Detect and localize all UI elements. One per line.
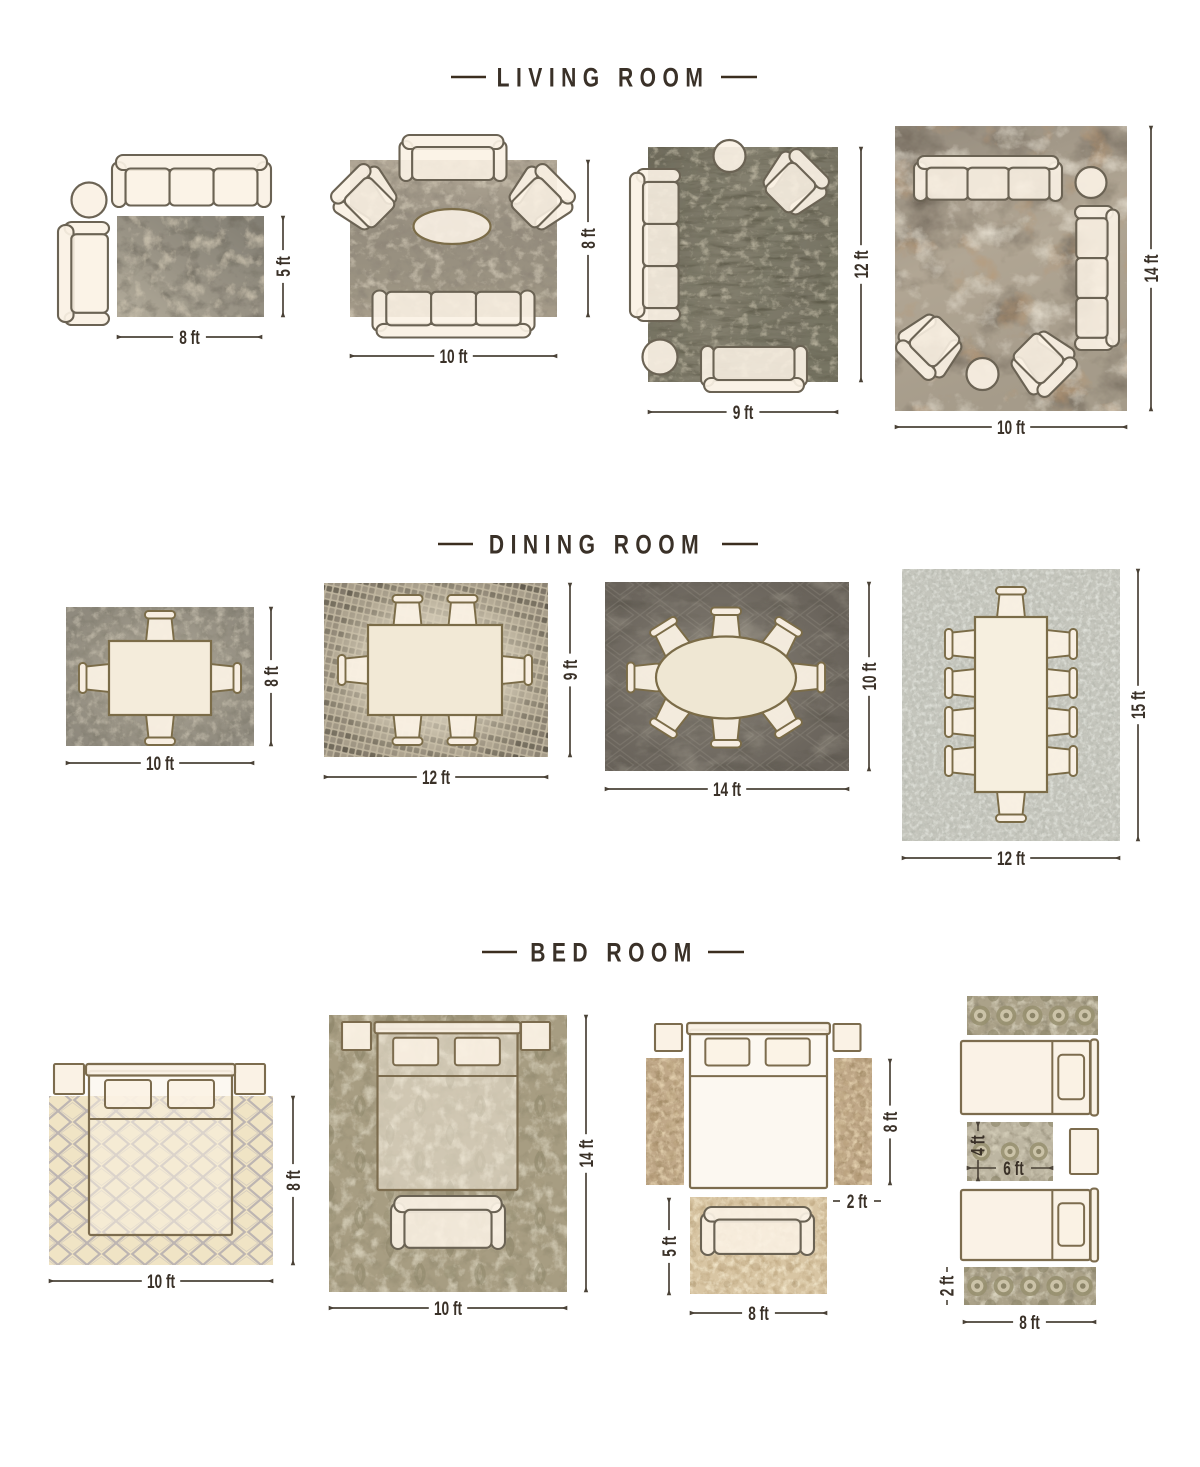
- svg-text:5 ft: 5 ft: [273, 256, 295, 277]
- svg-text:4 ft: 4 ft: [967, 1135, 989, 1156]
- svg-text:10 ft: 10 ft: [439, 346, 468, 368]
- svg-text:12 ft: 12 ft: [851, 250, 873, 279]
- svg-text:10 ft: 10 ft: [997, 417, 1026, 439]
- svg-text:8 ft: 8 ft: [748, 1303, 769, 1325]
- svg-text:8 ft: 8 ft: [578, 228, 600, 249]
- svg-text:LIVING ROOM: LIVING ROOM: [497, 63, 710, 93]
- svg-text:14 ft: 14 ft: [713, 779, 742, 801]
- svg-text:12 ft: 12 ft: [422, 767, 451, 789]
- svg-text:10 ft: 10 ft: [859, 662, 881, 691]
- svg-text:14 ft: 14 ft: [576, 1139, 598, 1168]
- svg-text:8 ft: 8 ft: [179, 327, 200, 349]
- svg-text:2 ft: 2 ft: [847, 1191, 868, 1213]
- svg-text:5 ft: 5 ft: [659, 1236, 681, 1257]
- svg-text:12 ft: 12 ft: [997, 848, 1026, 870]
- svg-text:15 ft: 15 ft: [1128, 691, 1150, 720]
- svg-text:14 ft: 14 ft: [1141, 254, 1163, 283]
- svg-text:9 ft: 9 ft: [733, 402, 754, 424]
- svg-text:6 ft: 6 ft: [1003, 1158, 1024, 1180]
- svg-text:10 ft: 10 ft: [147, 1271, 176, 1293]
- svg-text:10 ft: 10 ft: [146, 753, 175, 775]
- svg-text:8 ft: 8 ft: [1019, 1312, 1040, 1334]
- svg-text:8 ft: 8 ft: [880, 1111, 902, 1132]
- svg-text:BED ROOM: BED ROOM: [530, 938, 698, 968]
- svg-text:2 ft: 2 ft: [936, 1275, 958, 1296]
- svg-text:9 ft: 9 ft: [560, 659, 582, 680]
- svg-text:DINING ROOM: DINING ROOM: [489, 530, 705, 560]
- svg-text:8 ft: 8 ft: [283, 1170, 305, 1191]
- svg-text:8 ft: 8 ft: [261, 666, 283, 687]
- svg-text:10 ft: 10 ft: [434, 1298, 463, 1320]
